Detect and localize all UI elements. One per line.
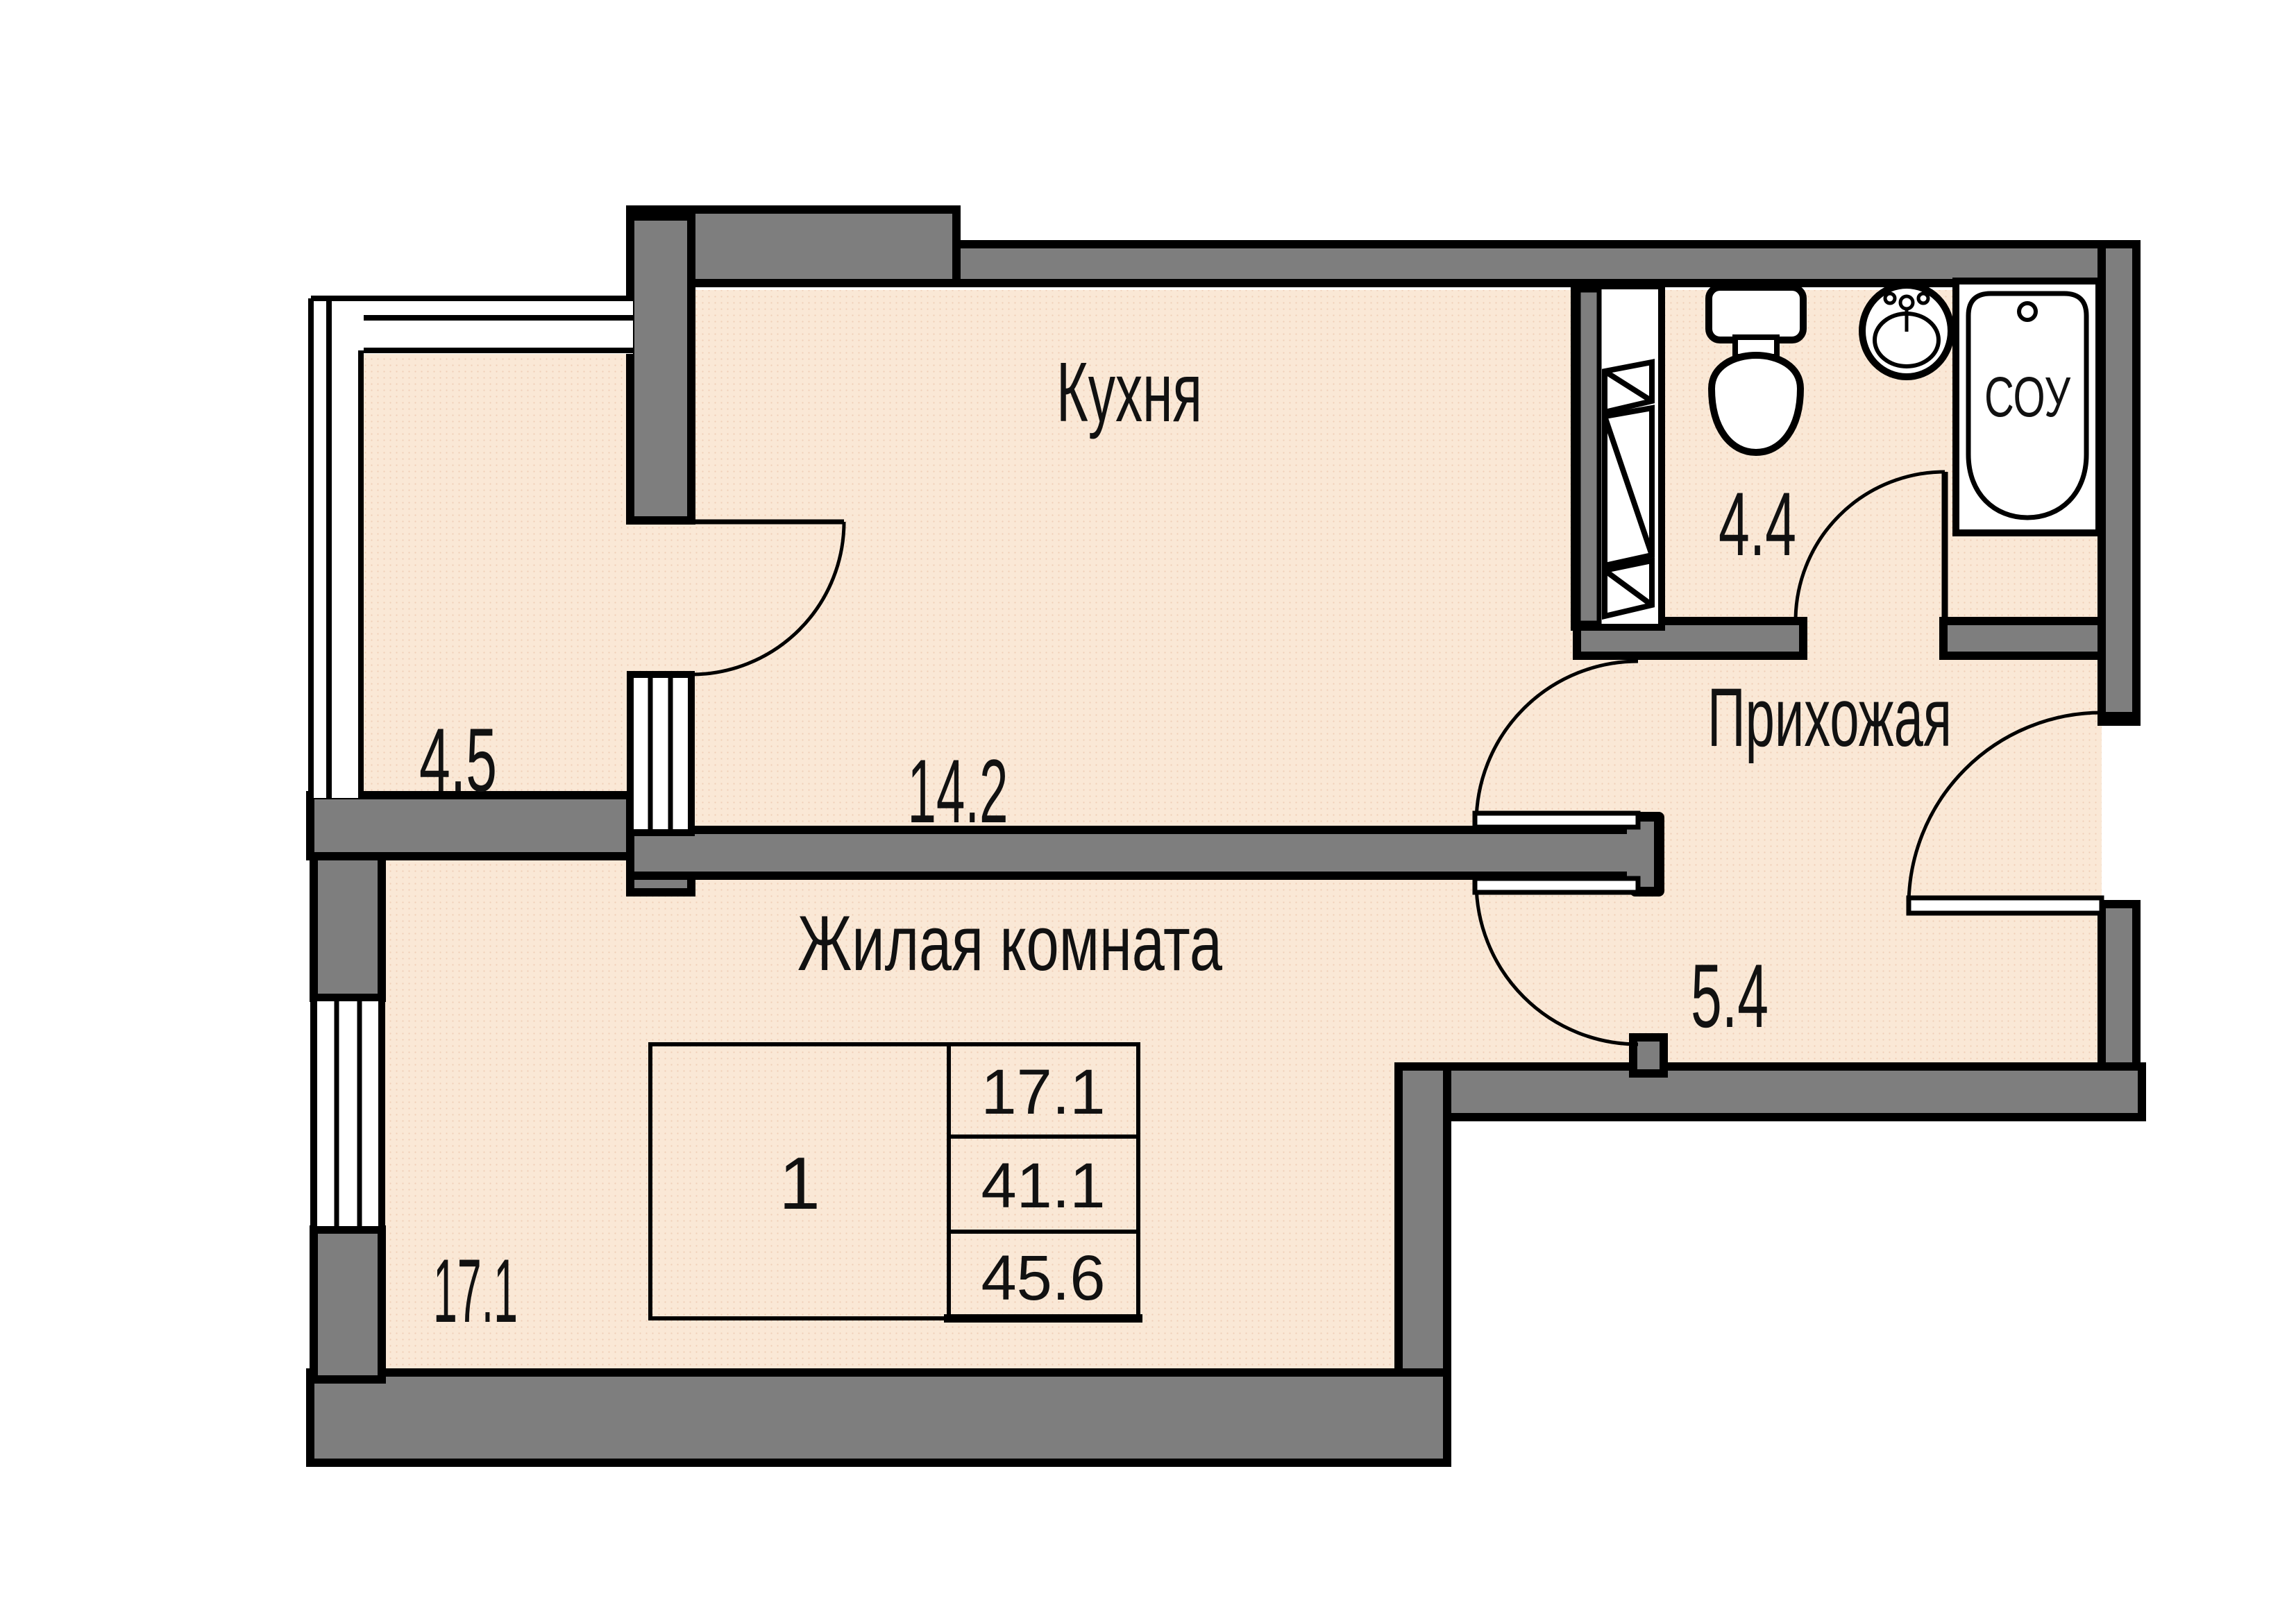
wall-step-vertical <box>1399 1067 1447 1378</box>
sink-icon <box>1862 285 1951 377</box>
table-living-area: 17.1 <box>981 1057 1105 1128</box>
kitchen-label: Кухня <box>1056 345 1202 439</box>
door-leaf <box>1475 878 1638 892</box>
wall-hallway-bottom <box>1440 1067 2142 1117</box>
floor-plan-drawing: Кухня 14.2 4.5 4.4 Прихожая 5.4 Жилая ко… <box>0 0 2296 1623</box>
bathtub-label: СОУ <box>1984 366 2071 429</box>
door-leaf <box>1909 898 2102 913</box>
wall-left-lower <box>314 1230 382 1379</box>
wall-kitchen-living <box>630 830 1638 876</box>
table-area-total: 45.6 <box>981 1243 1105 1314</box>
wall-living-bottom <box>310 1373 1447 1463</box>
balcony-kitchen-window <box>630 674 691 833</box>
toilet-icon <box>1709 287 1803 452</box>
living-room-area: 17.1 <box>433 1240 518 1341</box>
wall-right-upper <box>2102 244 2136 722</box>
door-leaf <box>1475 813 1638 827</box>
table-rooms-count: 1 <box>779 1141 820 1225</box>
table-area-main: 41.1 <box>981 1150 1105 1221</box>
kitchen-area: 14.2 <box>908 740 1008 842</box>
entrance-jamb-cap <box>2097 712 2141 722</box>
vent-shaft-icon <box>1574 286 1662 627</box>
balcony-area: 4.5 <box>419 709 497 810</box>
wall-bathroom-bottom-east <box>1943 621 2102 656</box>
living-room-label: Жилая комната <box>797 900 1223 987</box>
hallway-area: 5.4 <box>1691 945 1769 1046</box>
bathroom-area: 4.4 <box>1719 473 1796 575</box>
hallway-label: Прихожая <box>1707 671 1952 764</box>
floor-plan-page: Кухня 14.2 4.5 4.4 Прихожая 5.4 Жилая ко… <box>0 0 2296 1623</box>
wall-balcony-kitchen-stub <box>630 216 691 520</box>
living-room-window <box>314 998 382 1230</box>
wall-top <box>956 244 2136 283</box>
